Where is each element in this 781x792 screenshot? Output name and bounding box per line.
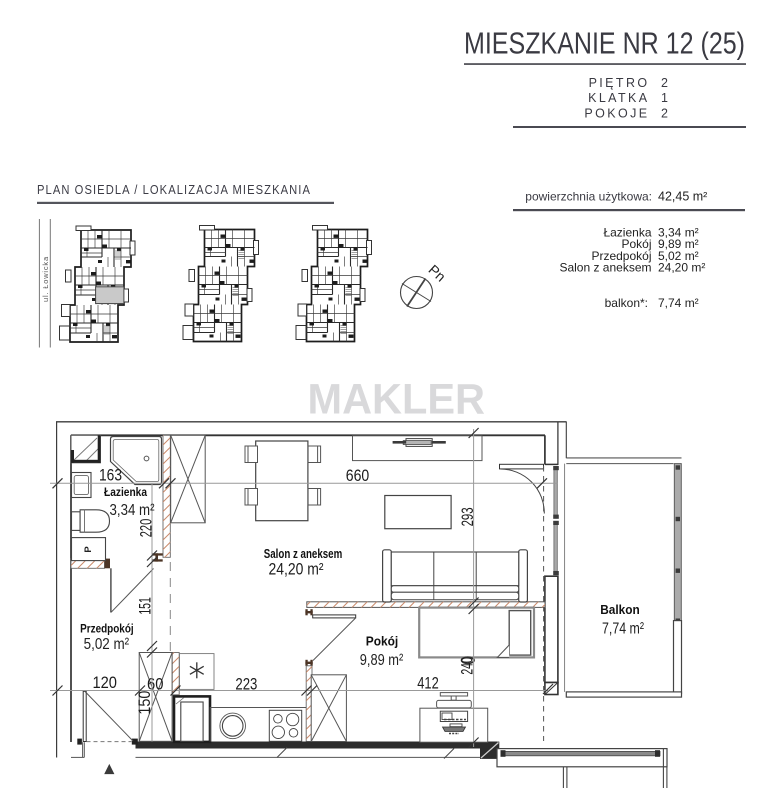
svg-text:240: 240: [458, 657, 476, 675]
svg-text:Salon z aneksem: Salon z aneksem: [559, 261, 651, 275]
svg-text:151: 151: [137, 597, 155, 615]
svg-text:220: 220: [138, 519, 156, 538]
svg-text:163: 163: [99, 467, 122, 485]
svg-text:2: 2: [661, 76, 668, 90]
svg-text:3,34 m²: 3,34 m²: [110, 502, 156, 519]
svg-text:42,45 m²: 42,45 m²: [658, 190, 707, 204]
svg-text:120: 120: [92, 674, 117, 692]
svg-text:7,74 m²: 7,74 m²: [602, 621, 645, 638]
svg-text:Salon z aneksem: Salon z aneksem: [264, 547, 343, 561]
svg-text:POKOJE: POKOJE: [584, 106, 649, 120]
svg-text:MAKLER: MAKLER: [308, 376, 486, 424]
svg-text:powierzchnia użytkowa:: powierzchnia użytkowa:: [525, 190, 652, 204]
svg-text:Łazienka: Łazienka: [104, 485, 147, 499]
svg-text:2: 2: [661, 106, 668, 120]
svg-text:PIĘTRO: PIĘTRO: [589, 76, 650, 90]
svg-text:5,02 m²: 5,02 m²: [84, 636, 130, 653]
svg-text:P: P: [83, 546, 94, 553]
svg-text:293: 293: [459, 507, 477, 526]
svg-text:Balkon: Balkon: [600, 603, 640, 617]
svg-text:7,74 m²: 7,74 m²: [658, 296, 699, 310]
svg-text:150: 150: [136, 691, 154, 715]
svg-text:MIESZKANIE NR 12 (25): MIESZKANIE NR 12 (25): [464, 26, 745, 61]
svg-text:9,89 m²: 9,89 m²: [360, 652, 404, 669]
svg-text:412: 412: [417, 674, 439, 692]
svg-text:Pokój: Pokój: [366, 635, 399, 649]
svg-text:1: 1: [661, 91, 668, 105]
svg-text:60: 60: [147, 675, 164, 693]
svg-text:KLATKA: KLATKA: [588, 91, 649, 105]
svg-text:Przedpokój: Przedpokój: [80, 622, 134, 636]
svg-text:PLAN OSIEDLA / LOKALIZACJA MIE: PLAN OSIEDLA / LOKALIZACJA MIESZKANIA: [37, 183, 311, 197]
svg-text:24,20 m²: 24,20 m²: [658, 261, 705, 275]
svg-text:24,20 m²: 24,20 m²: [269, 561, 324, 579]
svg-text:223: 223: [235, 676, 257, 694]
svg-text:balkon*:: balkon*:: [605, 296, 648, 310]
svg-text:660: 660: [346, 467, 370, 485]
svg-text:ul. Łowicka: ul. Łowicka: [41, 256, 50, 302]
